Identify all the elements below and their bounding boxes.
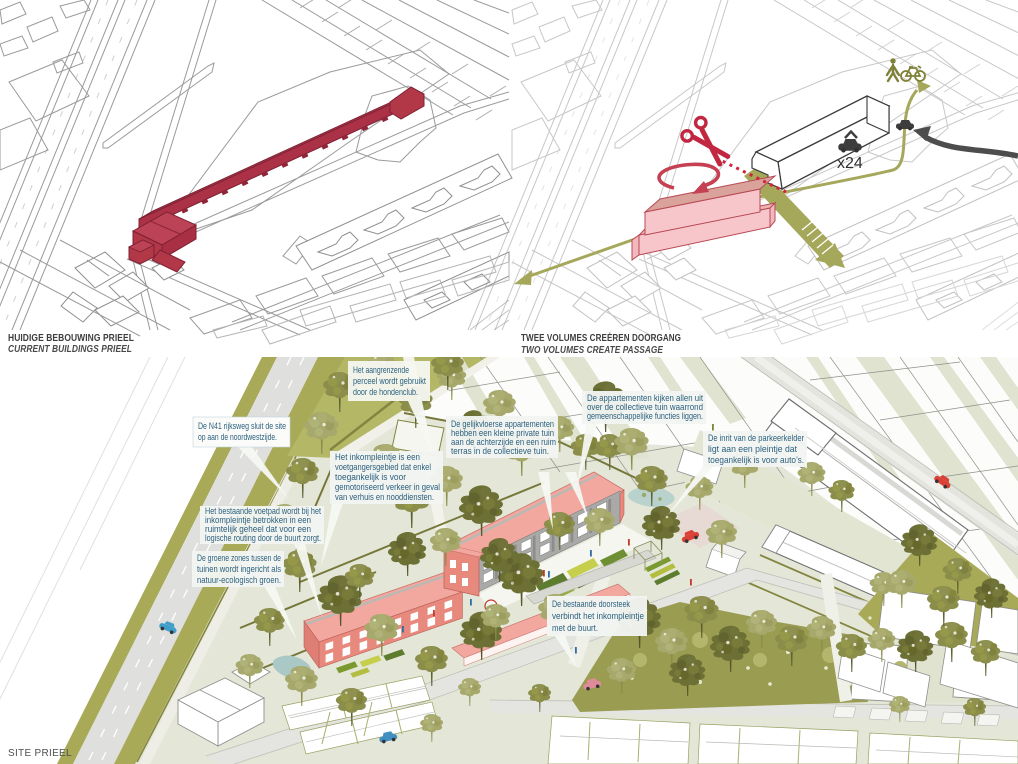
svg-text:Het bestaande voetpad wordt bi: Het bestaande voetpad wordt bij hetinkom… bbox=[205, 505, 321, 543]
svg-text:De groene zones tussen detuine: De groene zones tussen detuinen wordt in… bbox=[197, 552, 281, 585]
svg-text:De inrit van de parkeerkelderl: De inrit van de parkeerkelderligt aan ee… bbox=[708, 432, 804, 465]
svg-text:De gelijkvloerse appartementen: De gelijkvloerse appartementenhebben een… bbox=[451, 418, 556, 456]
svg-text:De N41 rijksweg sluit de siteo: De N41 rijksweg sluit de siteop aan de n… bbox=[198, 420, 286, 442]
svg-text:TWO VOLUMES CREATE PASSAGE: TWO VOLUMES CREATE PASSAGE bbox=[521, 344, 664, 356]
svg-text:SITE PRIEEL: SITE PRIEEL bbox=[8, 748, 72, 759]
svg-text:x24: x24 bbox=[837, 155, 863, 172]
svg-text:CURRENT BUILDINGS PRIEEL: CURRENT BUILDINGS PRIEEL bbox=[8, 343, 132, 355]
svg-text:TWEE VOLUMES CREĖREN DOORGANG: TWEE VOLUMES CREĖREN DOORGANG bbox=[521, 331, 681, 344]
svg-text:De appartementen kijken allen: De appartementen kijken allen uitover de… bbox=[587, 392, 703, 421]
